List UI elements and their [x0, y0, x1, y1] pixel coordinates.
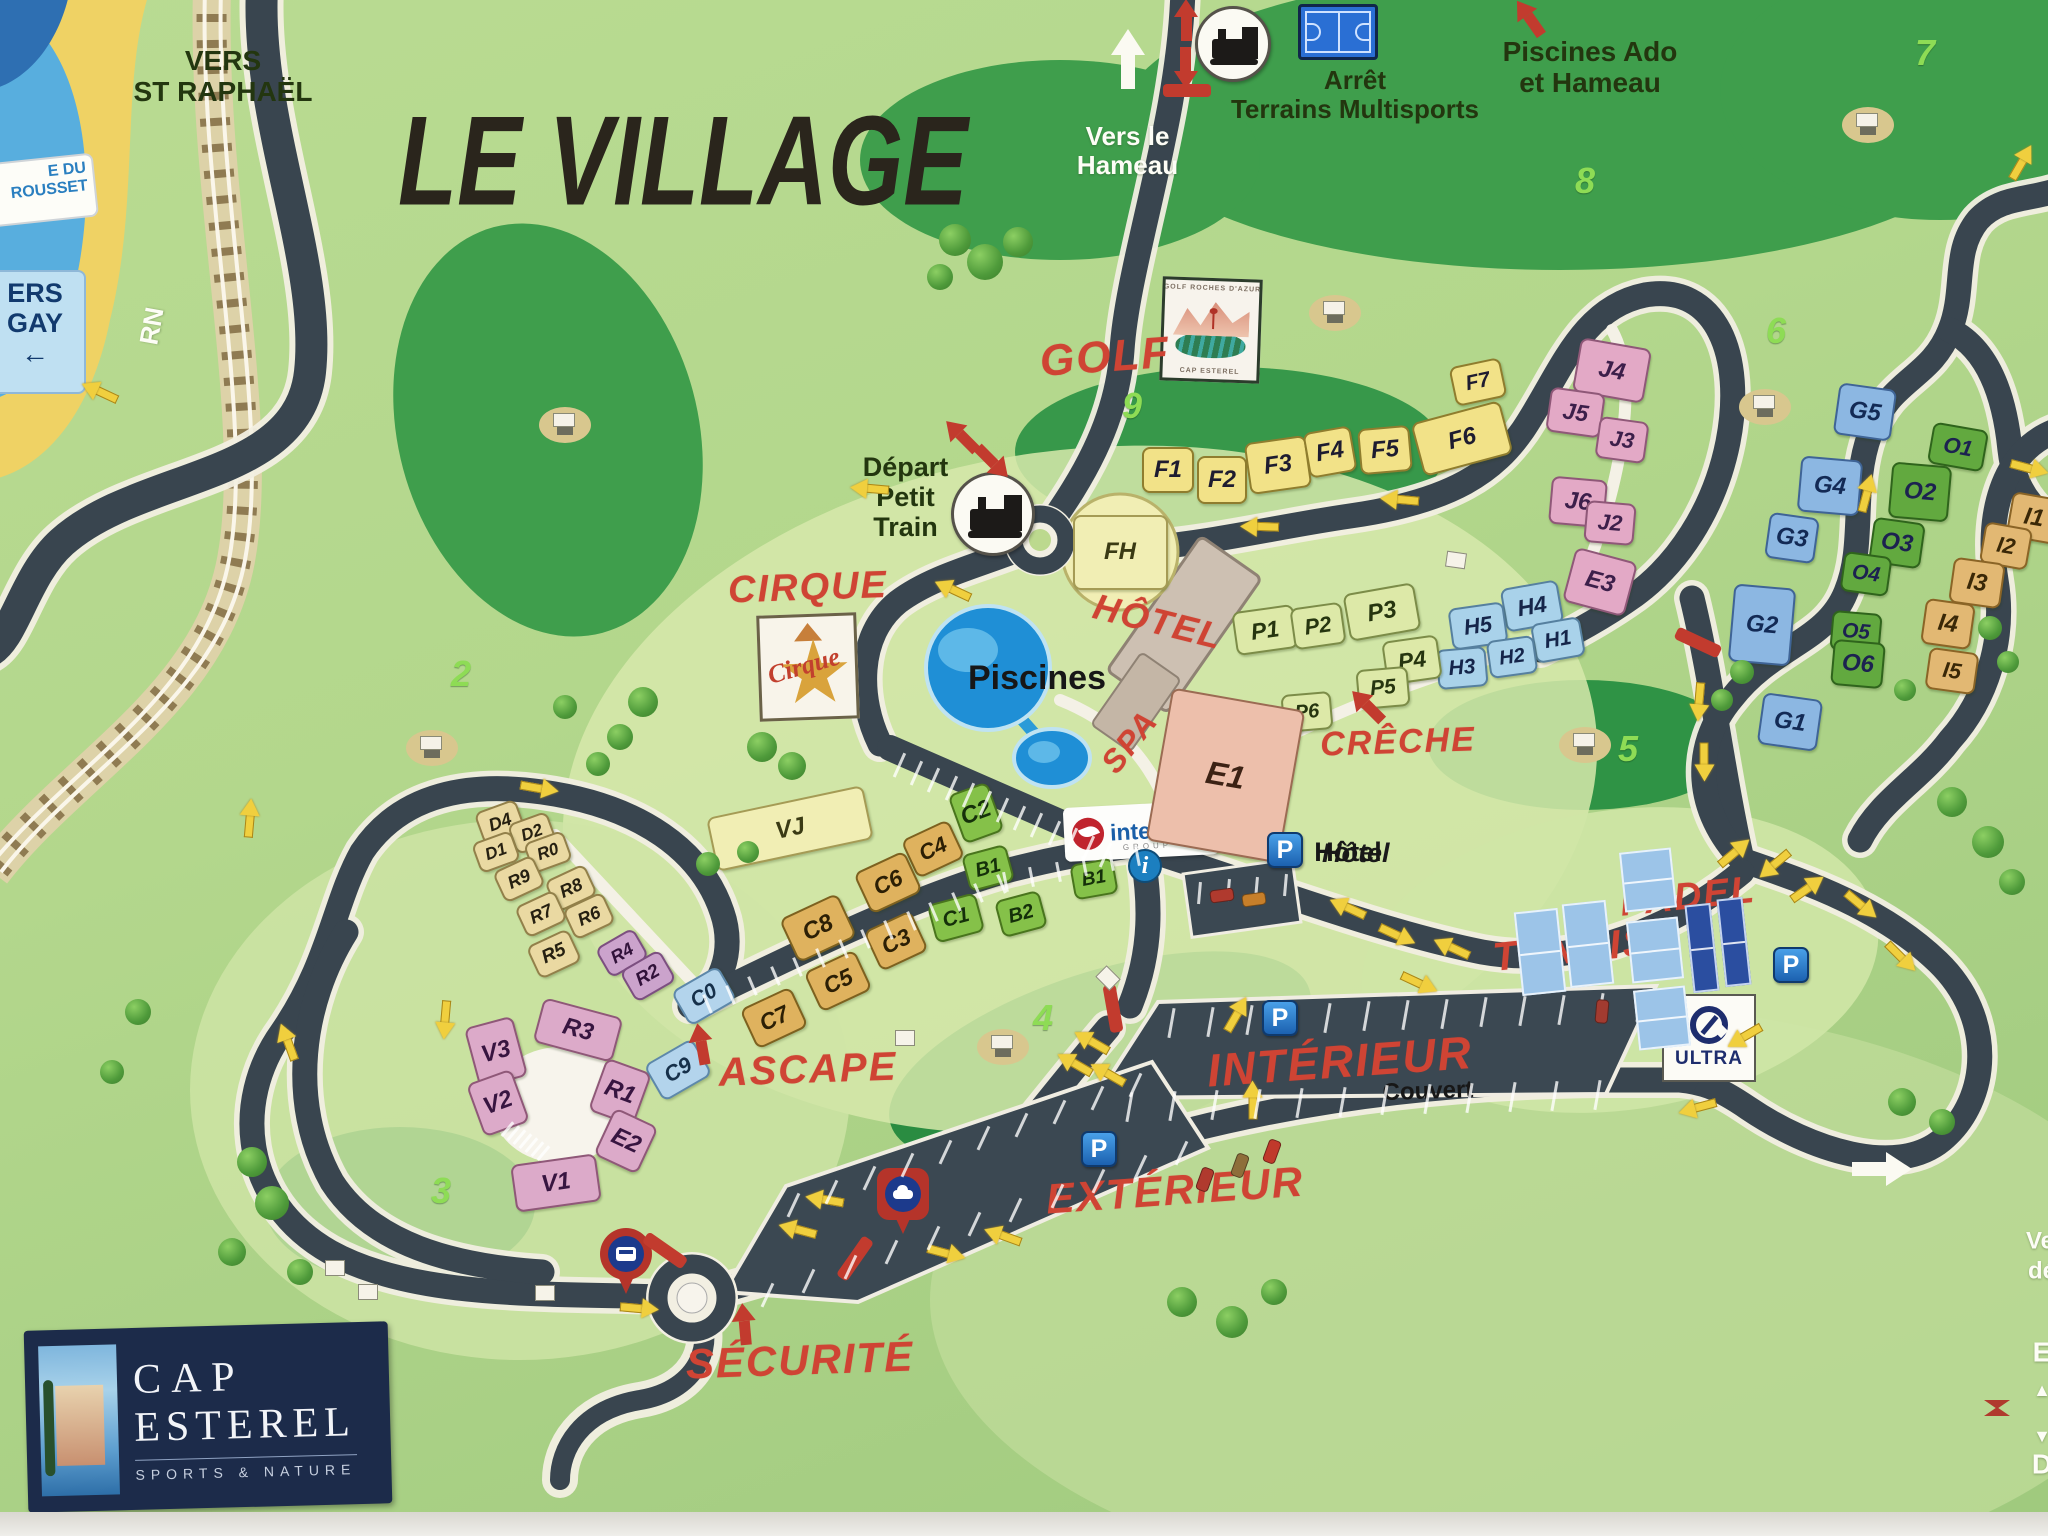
- route-arrow-icon: [1174, 47, 1198, 89]
- tree: [100, 1060, 124, 1084]
- ev-charging-icon: [877, 1168, 931, 1238]
- tree: [1003, 227, 1033, 257]
- tree: [778, 752, 806, 780]
- golf-cart-icon: [1842, 107, 1894, 143]
- train-station-icon: [1195, 6, 1271, 82]
- building-fh: FH: [1073, 515, 1168, 590]
- building-f5: F5: [1357, 425, 1413, 475]
- multisport-court-icon: [1298, 4, 1378, 60]
- sign-grousset: E DU ROUSSET: [0, 153, 99, 228]
- label-d-: dé: [2028, 1259, 2048, 1286]
- tree: [1888, 1088, 1916, 1116]
- building-g3: G3: [1764, 512, 1820, 565]
- tree: [586, 752, 610, 776]
- label-cirque: CIRQUE: [727, 564, 888, 612]
- tree: [967, 244, 1003, 280]
- hut-marker: [895, 1030, 915, 1046]
- parking-sign-icon: P: [1267, 832, 1303, 868]
- hut-marker: [535, 1285, 555, 1301]
- building-h2: H2: [1486, 635, 1539, 679]
- building-f3: F3: [1244, 435, 1313, 495]
- building-f4: F4: [1302, 425, 1357, 479]
- photo-paper-edge: [0, 1512, 2048, 1536]
- road-barrier-icon: [1163, 84, 1211, 97]
- direction-arrow-icon: [434, 1000, 457, 1041]
- tree: [1711, 689, 1733, 711]
- building-j5: J5: [1545, 386, 1606, 438]
- label-d: D: [2032, 1448, 2048, 1479]
- direction-arrow-icon: [1379, 488, 1420, 511]
- tree: [287, 1259, 313, 1285]
- golf-cart-icon: [1309, 295, 1361, 331]
- building-g1: G1: [1757, 692, 1824, 752]
- tree: [255, 1186, 289, 1220]
- golf-badge-top-text: GOLF ROCHES D'AZUR: [1164, 283, 1262, 293]
- direction-arrow-icon: [1688, 682, 1711, 723]
- building-j3: J3: [1594, 416, 1649, 465]
- tree: [747, 732, 777, 762]
- tree: [696, 852, 720, 876]
- label-cr-che: CRÊCHE: [1320, 720, 1477, 763]
- tree: [1997, 651, 2019, 673]
- golf-cart-icon: [539, 407, 591, 443]
- building-h1: H1: [1530, 616, 1586, 664]
- building-p2: P2: [1289, 602, 1346, 651]
- label-piscines: Piscines: [968, 659, 1106, 697]
- label-golf: GOLF: [1038, 328, 1171, 386]
- tree: [1929, 1109, 1955, 1135]
- building-j2: J2: [1583, 500, 1636, 546]
- golf-hole-4: 4: [1033, 997, 1053, 1039]
- map-title: LE VILLAGE: [398, 88, 968, 235]
- golf-cart-icon: [406, 730, 458, 766]
- direction-arrow-icon: [849, 477, 890, 500]
- tennis-court: [1633, 985, 1691, 1050]
- building-f2: F2: [1197, 456, 1247, 504]
- building-i5: I5: [1924, 647, 1979, 696]
- building-o6: O6: [1830, 639, 1886, 689]
- tree: [1261, 1279, 1287, 1305]
- golf-cart-icon: [977, 1029, 1029, 1065]
- golf-hole-2: 2: [451, 653, 471, 695]
- label--: ▲: [2033, 1380, 2048, 1400]
- parking-sign-icon: P: [1081, 1131, 1117, 1167]
- cap-logo-tagline: SPORTS & NATURE: [135, 1454, 357, 1483]
- tennis-court: [1514, 908, 1567, 996]
- car-icon: [1594, 999, 1609, 1024]
- tree: [607, 724, 633, 750]
- tree: [1730, 660, 1754, 684]
- tennis-court: [1562, 900, 1615, 988]
- tree: [1999, 869, 2025, 895]
- golf-hole-3: 3: [431, 1170, 451, 1212]
- golf-cart-icon: [1559, 727, 1611, 763]
- tennis-court: [1619, 847, 1677, 912]
- tree: [628, 687, 658, 717]
- tree: [237, 1147, 267, 1177]
- resort-map: LE VILLAGE VERS ST RAPHAËL Vers le Hamea…: [0, 0, 2048, 1536]
- golf-hole-7: 7: [1915, 32, 1935, 74]
- building-h3: H3: [1435, 646, 1488, 690]
- petit-train-depart-icon: [951, 472, 1035, 556]
- golf-badge-bottom-text: CAP ESTEREL: [1179, 367, 1239, 376]
- building-g5: G5: [1833, 382, 1898, 442]
- direction-hameau: Vers le Hameau: [1045, 122, 1210, 180]
- building-o4: O4: [1839, 551, 1892, 597]
- parking-sign-icon: P: [1262, 1000, 1298, 1036]
- building-o2: O2: [1888, 461, 1953, 522]
- golf-hole-8: 8: [1575, 160, 1595, 202]
- tennis-court: [1626, 916, 1684, 983]
- tree: [737, 841, 759, 863]
- direction-arrow-icon: [1240, 516, 1280, 537]
- label-h-tel: Hôtel: [1314, 837, 1382, 867]
- tree: [218, 1238, 246, 1266]
- tree: [125, 999, 151, 1025]
- hut-marker: [325, 1260, 345, 1276]
- tree: [1167, 1287, 1197, 1317]
- info-icon: i: [1128, 849, 1162, 883]
- golf-club-badge: GOLF ROCHES D'AZUR CAP ESTEREL: [1159, 276, 1263, 383]
- tree: [1972, 826, 2004, 858]
- tree: [1216, 1306, 1248, 1338]
- direction-arrow-icon: [238, 798, 261, 839]
- cirque-badge: Cirque: [756, 612, 860, 721]
- direction-arrow-icon: [619, 1296, 660, 1319]
- hut-marker: [1445, 551, 1467, 570]
- tree: [1937, 787, 1967, 817]
- direction-arrow-icon: [1695, 743, 1715, 782]
- building-p1: P1: [1231, 604, 1299, 656]
- building-i4: I4: [1920, 598, 1976, 651]
- label-e: E: [2033, 1336, 2048, 1367]
- direction-st-raphael: VERS ST RAPHAËL: [118, 45, 328, 108]
- label-ascape: ASCAPE: [718, 1044, 898, 1095]
- route-arrow-icon: [1174, 0, 1198, 41]
- exit-arrow-icon: [1852, 1152, 1912, 1186]
- cap-logo-line2: ESTEREL: [134, 1398, 357, 1452]
- agay-arrow-icon: ←: [0, 338, 78, 370]
- sign-vers-agay: ERS GAY ←: [0, 270, 86, 394]
- hameau-arrow-icon: [1111, 29, 1145, 89]
- building-f1: F1: [1142, 447, 1194, 493]
- route-arrow-icon: [730, 1302, 758, 1346]
- tree: [553, 695, 577, 719]
- hut-marker: [358, 1284, 378, 1300]
- tree: [1978, 616, 2002, 640]
- cap-esterel-logo-art: [38, 1344, 120, 1496]
- golf-hole-9: 9: [1122, 385, 1142, 427]
- parking-sign-icon: P: [1773, 947, 1809, 983]
- tree: [927, 264, 953, 290]
- golf-cart-icon: [1739, 389, 1791, 425]
- direction-arrow-icon: [1243, 1081, 1263, 1120]
- label-s-curit-: SÉCURITÉ: [685, 1333, 915, 1388]
- tree: [939, 224, 971, 256]
- label-ve: Ve: [2026, 1229, 2048, 1256]
- cap-logo-line1: CAP: [132, 1350, 355, 1404]
- label--: ▼: [2033, 1426, 2048, 1446]
- cap-esterel-logo: CAP ESTEREL SPORTS & NATURE: [24, 1321, 393, 1512]
- golf-hole-5: 5: [1618, 728, 1638, 770]
- tree: [1894, 679, 1916, 701]
- building-g2: G2: [1728, 583, 1797, 666]
- golf-hole-6: 6: [1766, 310, 1786, 352]
